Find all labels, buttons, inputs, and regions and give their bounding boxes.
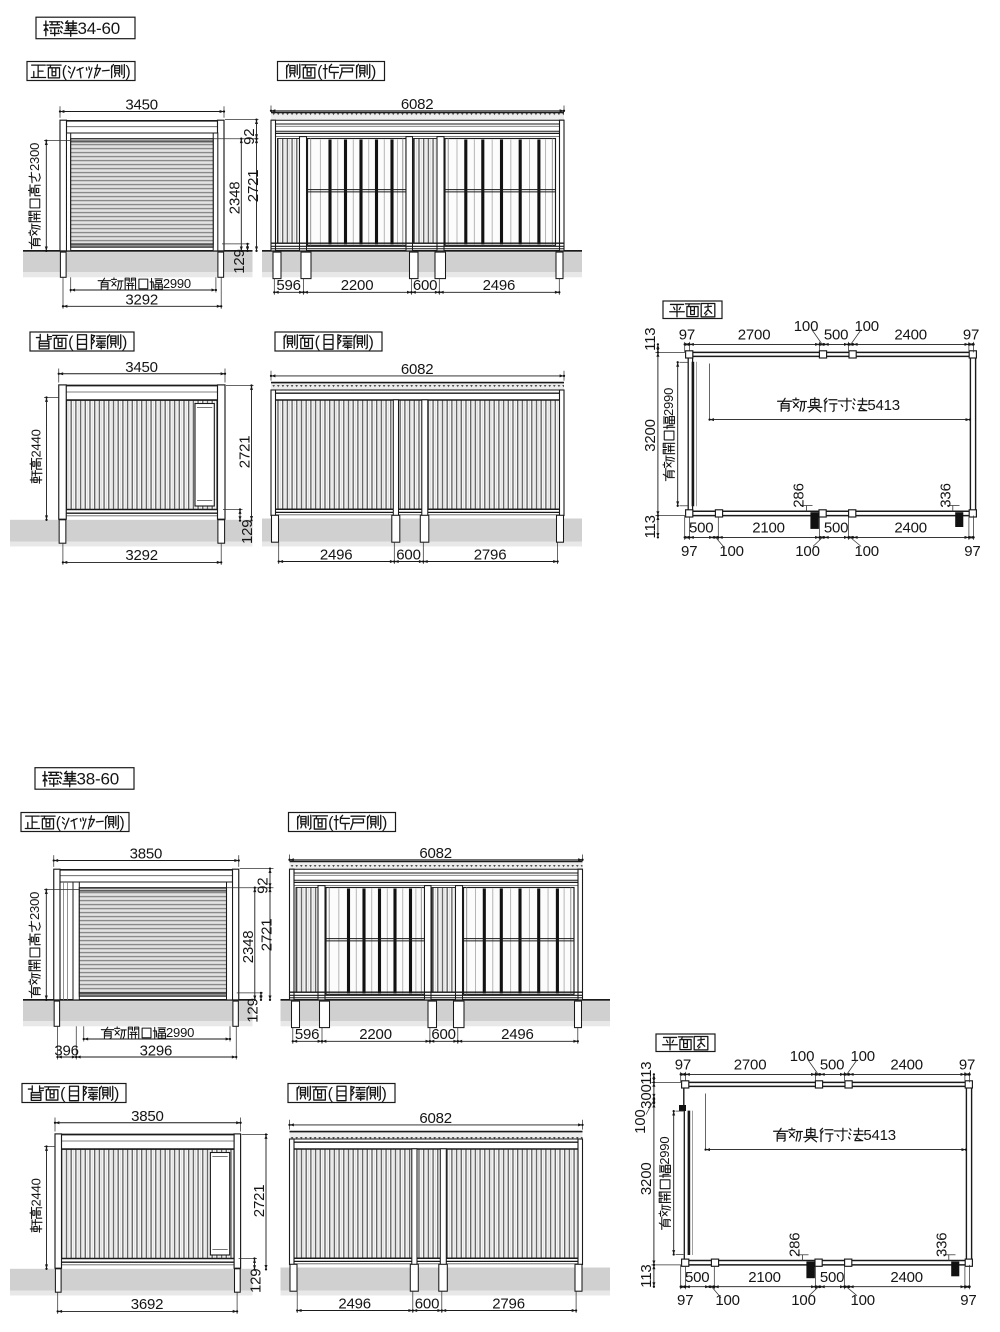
svg-text:100: 100 — [850, 1292, 874, 1309]
svg-text:2400: 2400 — [894, 327, 927, 344]
svg-text:100: 100 — [854, 318, 878, 335]
svg-text:): ) — [371, 64, 376, 81]
svg-text:97: 97 — [963, 327, 979, 344]
svg-text:100: 100 — [719, 543, 743, 560]
svg-text:336: 336 — [933, 1233, 950, 1257]
svg-text:92: 92 — [241, 129, 258, 145]
svg-text:3450: 3450 — [125, 96, 158, 113]
svg-text:): ) — [126, 63, 131, 80]
svg-text:3296: 3296 — [140, 1042, 173, 1059]
svg-text:2796: 2796 — [492, 1295, 525, 1312]
svg-text:3200: 3200 — [638, 1163, 655, 1196]
svg-text:2796: 2796 — [474, 546, 507, 563]
svg-text:2990: 2990 — [657, 1137, 672, 1165]
svg-text:100: 100 — [791, 1292, 815, 1309]
svg-text:(: ( — [328, 815, 334, 832]
svg-text:(: ( — [328, 1086, 334, 1103]
svg-text:(: ( — [68, 334, 74, 351]
svg-text:500: 500 — [824, 327, 848, 344]
svg-text:2990: 2990 — [166, 1025, 194, 1040]
svg-text:286: 286 — [787, 1233, 804, 1257]
svg-text:100: 100 — [850, 1048, 874, 1065]
svg-text:600: 600 — [415, 1295, 439, 1312]
svg-text:336: 336 — [937, 483, 954, 507]
svg-text:97: 97 — [677, 1292, 693, 1309]
svg-text:600: 600 — [396, 546, 420, 563]
svg-text:113: 113 — [642, 328, 659, 351]
svg-text:): ) — [382, 815, 387, 832]
svg-text:2348: 2348 — [226, 182, 243, 215]
svg-text:97: 97 — [960, 1292, 976, 1309]
svg-text:97: 97 — [679, 327, 695, 344]
svg-text:113: 113 — [642, 515, 659, 538]
svg-text:129: 129 — [245, 998, 262, 1022]
svg-text:500: 500 — [685, 1269, 709, 1286]
svg-text:100: 100 — [715, 1292, 739, 1309]
svg-text:2721: 2721 — [237, 436, 254, 469]
svg-text:38-60: 38-60 — [76, 769, 118, 788]
svg-text:2496: 2496 — [483, 277, 516, 294]
svg-text:2700: 2700 — [734, 1057, 767, 1074]
svg-text:3692: 3692 — [131, 1296, 164, 1313]
svg-text:2400: 2400 — [890, 1057, 923, 1074]
svg-text:600: 600 — [431, 1026, 455, 1043]
svg-text:2300: 2300 — [27, 143, 42, 171]
svg-text:6082: 6082 — [401, 361, 434, 378]
svg-text:2721: 2721 — [258, 919, 275, 952]
svg-text:596: 596 — [295, 1026, 319, 1043]
svg-text:2721: 2721 — [251, 1185, 268, 1218]
svg-text:2400: 2400 — [890, 1269, 923, 1286]
svg-text:34-60: 34-60 — [77, 19, 119, 38]
svg-text:(: ( — [60, 1086, 66, 1103]
svg-text:2496: 2496 — [338, 1295, 371, 1312]
svg-text:600: 600 — [413, 277, 437, 294]
svg-text:3450: 3450 — [125, 359, 158, 376]
svg-text:100: 100 — [795, 543, 819, 560]
svg-text:3292: 3292 — [125, 292, 158, 309]
svg-text:2100: 2100 — [748, 1269, 781, 1286]
svg-text:2990: 2990 — [163, 276, 191, 291]
svg-text:(: ( — [317, 64, 323, 81]
svg-text:2300: 2300 — [27, 892, 42, 920]
svg-text:6082: 6082 — [401, 96, 434, 113]
svg-text:2440: 2440 — [28, 1178, 43, 1206]
svg-text:3200: 3200 — [642, 419, 659, 452]
svg-text:129: 129 — [247, 1269, 264, 1293]
svg-text:2200: 2200 — [341, 277, 374, 294]
svg-text:6082: 6082 — [419, 1110, 452, 1127]
svg-text:2496: 2496 — [320, 546, 353, 563]
svg-text:2348: 2348 — [240, 931, 257, 964]
svg-text:97: 97 — [959, 1057, 975, 1074]
svg-text:286: 286 — [791, 483, 808, 507]
svg-text:5413: 5413 — [867, 397, 900, 414]
svg-text:97: 97 — [681, 543, 697, 560]
svg-text:2496: 2496 — [501, 1026, 534, 1043]
svg-text:3292: 3292 — [125, 547, 158, 564]
svg-text:500: 500 — [824, 520, 848, 537]
svg-text:6082: 6082 — [419, 845, 452, 862]
svg-text:2200: 2200 — [359, 1026, 392, 1043]
svg-text:100: 100 — [794, 318, 818, 335]
svg-text:596: 596 — [276, 277, 300, 294]
svg-text:2990: 2990 — [661, 388, 676, 416]
svg-text:500: 500 — [820, 1057, 844, 1074]
svg-text:300: 300 — [638, 1084, 655, 1108]
svg-text:92: 92 — [255, 878, 272, 894]
svg-text:500: 500 — [689, 520, 713, 537]
svg-text:): ) — [369, 334, 374, 351]
svg-text:2100: 2100 — [752, 520, 785, 537]
svg-text:3850: 3850 — [130, 845, 163, 862]
svg-text:113: 113 — [638, 1264, 655, 1287]
svg-text:129: 129 — [231, 249, 248, 273]
svg-text:3850: 3850 — [131, 1108, 164, 1125]
svg-text:113: 113 — [638, 1062, 655, 1085]
svg-text:5413: 5413 — [863, 1127, 896, 1144]
svg-text:): ) — [114, 1086, 119, 1103]
svg-text:100: 100 — [854, 543, 878, 560]
svg-text:2721: 2721 — [245, 170, 262, 203]
svg-text:): ) — [382, 1086, 387, 1103]
svg-text:129: 129 — [239, 520, 256, 544]
svg-text:396: 396 — [54, 1042, 78, 1059]
svg-text:): ) — [120, 814, 125, 831]
svg-text:): ) — [122, 334, 127, 351]
svg-text:2400: 2400 — [894, 520, 927, 537]
svg-text:100: 100 — [790, 1048, 814, 1065]
svg-text:97: 97 — [964, 543, 980, 560]
svg-text:97: 97 — [675, 1057, 691, 1074]
svg-text:(: ( — [315, 334, 321, 351]
svg-text:2440: 2440 — [28, 429, 43, 457]
svg-text:500: 500 — [820, 1269, 844, 1286]
svg-text:2700: 2700 — [738, 327, 771, 344]
